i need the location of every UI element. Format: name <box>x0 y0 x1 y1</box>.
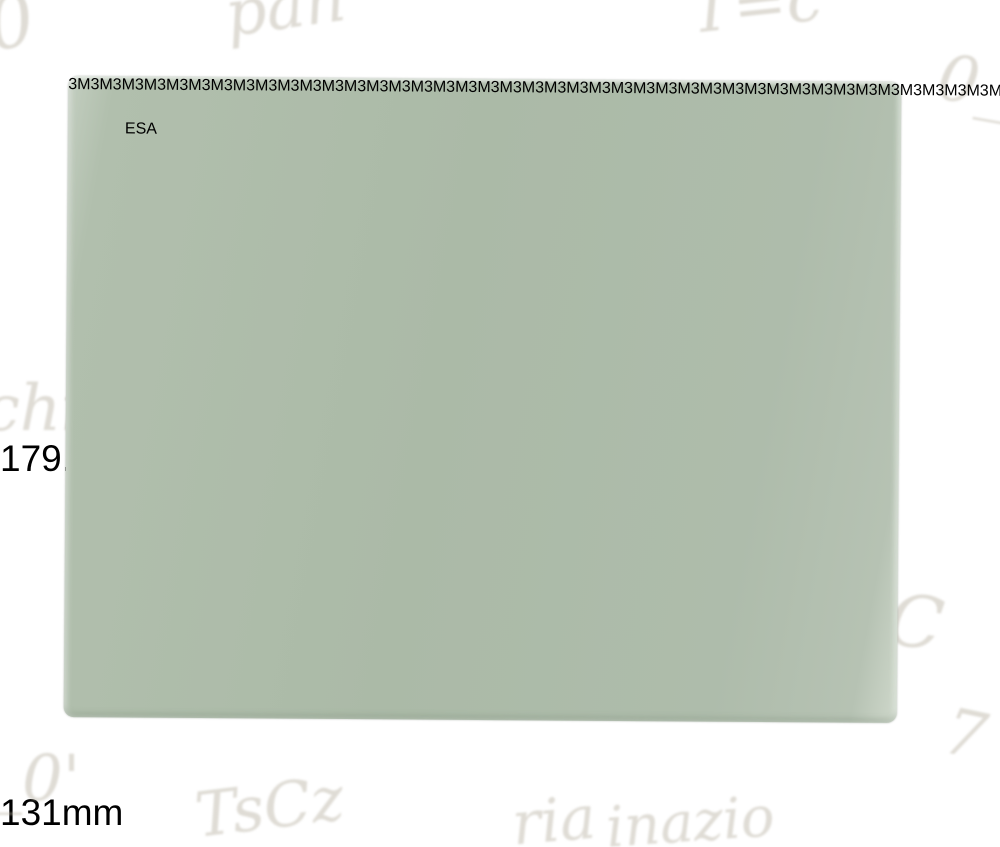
pattern-3m-mark: 3M <box>357 78 379 95</box>
pattern-3m-mark: 3M <box>224 77 246 94</box>
dimension-label-inner-height: 131mm <box>0 791 200 835</box>
screen-window: 3M3M3M3M3M3M3M3M3M3M3M3M3M3M3M3M3M3M3M3M… <box>67 76 901 292</box>
pattern-3m-mark: 3M <box>202 77 224 94</box>
dimension-line <box>0 241 3 437</box>
protective-film: ESA 3M3M3M3M3M3M3M3M3M3M3M3M3M3M3M3M3M3M… <box>64 76 902 723</box>
extension-line <box>0 3 50 6</box>
pattern-3m-mark: 3M <box>802 81 824 98</box>
pattern-3m-mark: 3M <box>491 79 513 96</box>
pattern-3m-mark: 3M <box>757 81 779 98</box>
pattern-3m-mark: 3M <box>646 80 668 97</box>
pattern-3m-mark: 3M <box>113 76 135 93</box>
pattern-3m-mark: 3M <box>891 82 913 99</box>
pattern-3m-mark: 3M <box>557 80 579 97</box>
dimension-line <box>0 6 3 241</box>
pattern-3m-mark: 3M <box>535 79 557 96</box>
adhesive-pattern: 3M3M3M3M3M3M3M3M3M3M3M3M3M3M3M3M3M3M3M3M… <box>64 76 902 723</box>
pattern-3m-mark: 3M <box>580 80 602 97</box>
pattern-3m-mark: 3M <box>402 78 424 95</box>
pattern-3m-mark: 3M <box>513 79 535 96</box>
pattern-3m-mark: 3M <box>68 76 90 93</box>
pattern-3m-mark: 3M <box>780 81 802 98</box>
pattern-3m-mark: 3M <box>268 77 290 94</box>
pattern-3m-mark: 3M <box>624 80 646 97</box>
pattern-3m-mark: 3M <box>735 81 757 98</box>
pattern-3m-mark: 3M <box>869 82 891 99</box>
pattern-3m-mark: 3M <box>668 80 690 97</box>
pattern-3m-mark: 3M <box>179 77 201 94</box>
pattern-3m-mark: 3M <box>691 80 713 97</box>
pattern-3m-mark: 3M <box>446 79 468 96</box>
pattern-3m-mark: 3M <box>135 77 157 94</box>
pattern-3m-mark: 3M <box>424 79 446 96</box>
pattern-3m-mark: 3M <box>90 76 112 93</box>
dimension-line <box>0 487 3 645</box>
pattern-3m-mark: 3M <box>379 78 401 95</box>
pattern-3m-mark: 3M <box>824 81 846 98</box>
pattern-3m-mark: 3M <box>246 77 268 94</box>
pattern-3m-mark: 3M <box>980 83 1000 100</box>
pattern-3m-mark: 3M <box>468 79 490 96</box>
pattern-3m-mark: 3M <box>602 80 624 97</box>
extension-line <box>0 484 54 487</box>
dimension-inner-width: 173mm <box>0 835 1000 847</box>
pattern-3m-mark: 3M <box>713 81 735 98</box>
pattern-3m-mark: 3M <box>291 78 313 95</box>
pattern-3m-mark: 3M <box>958 82 980 99</box>
product-photo: 0 pan T=c 0_ chi Cz_-0 C _0' TsCz ria in… <box>0 0 1000 847</box>
pattern-3m-mark: 3M <box>313 78 335 95</box>
pattern-3m-mark: 3M <box>335 78 357 95</box>
extension-line <box>0 835 3 847</box>
dimension-line <box>0 645 3 791</box>
pattern-3m-mark: 3M <box>913 82 935 99</box>
pattern-3m-mark: 3M <box>157 77 179 94</box>
pattern-3m-mark: 3M <box>846 82 868 99</box>
pattern-3m-mark: 3M <box>935 82 957 99</box>
